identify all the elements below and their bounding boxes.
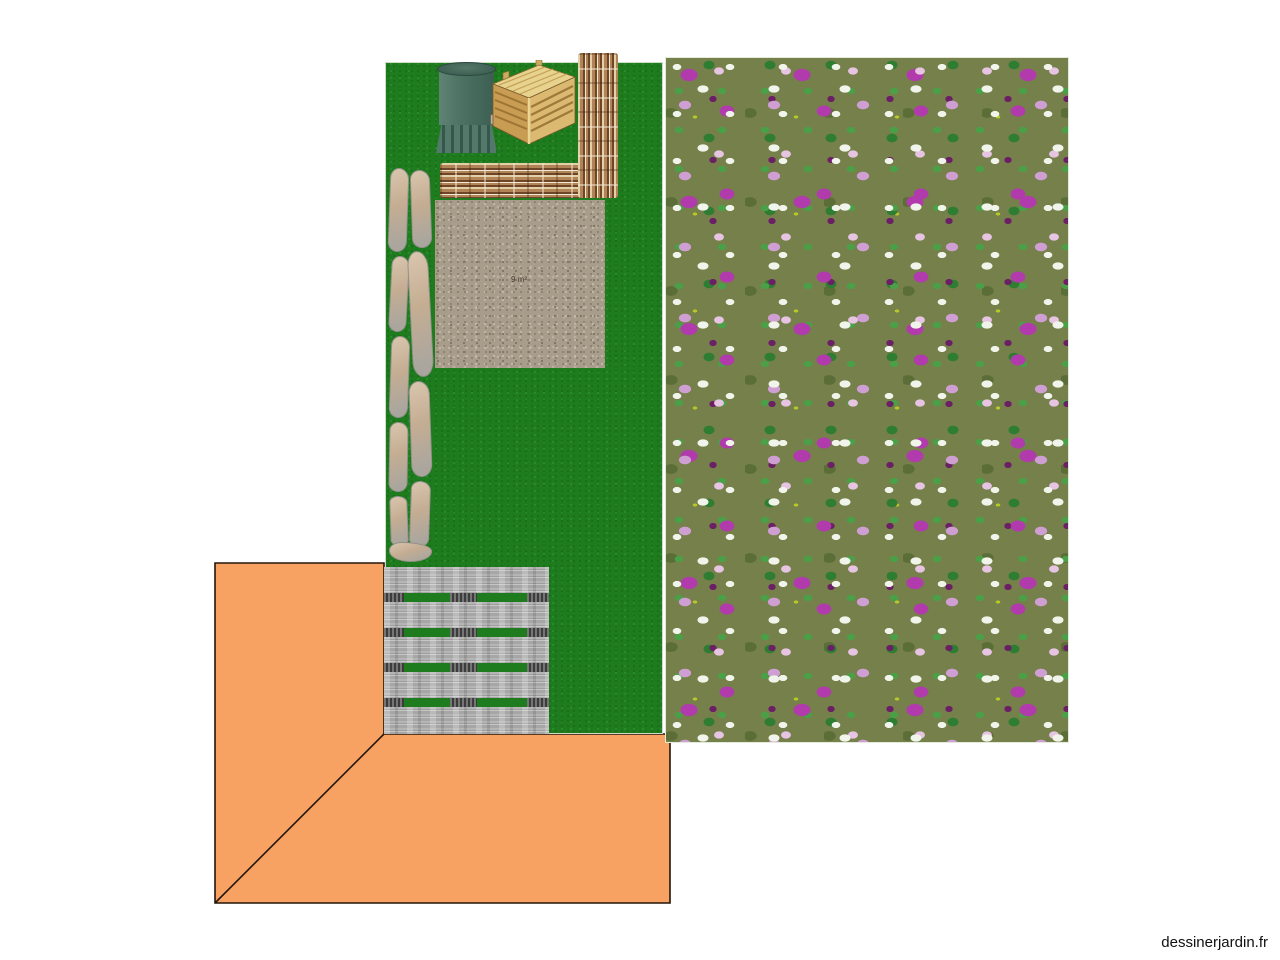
deck-support-hatch bbox=[384, 663, 404, 672]
deck-support-hatch bbox=[384, 628, 404, 637]
stone-slab bbox=[389, 542, 432, 562]
deck-support-hatch bbox=[384, 593, 404, 602]
deck-support-hatch bbox=[527, 628, 549, 637]
water-barrel[interactable] bbox=[436, 62, 497, 153]
deck-support-hatch bbox=[450, 698, 477, 707]
stone-path[interactable] bbox=[384, 165, 436, 565]
deck-plank-gap bbox=[384, 593, 549, 602]
stone-slab bbox=[409, 481, 431, 548]
deck-support-hatch bbox=[450, 663, 477, 672]
flower-bed[interactable] bbox=[665, 57, 1069, 743]
wood-deck[interactable] bbox=[384, 567, 549, 734]
stone-slab bbox=[388, 168, 410, 253]
gravel-area-label: 9 m² bbox=[511, 275, 527, 285]
deck-support-hatch bbox=[384, 698, 404, 707]
deck-support-hatch bbox=[450, 593, 477, 602]
stone-slab bbox=[408, 381, 432, 478]
stone-slab bbox=[389, 336, 411, 419]
deck-plank-gap bbox=[384, 628, 549, 637]
deck-support-hatch bbox=[450, 628, 477, 637]
deck-plank-gap bbox=[384, 663, 549, 672]
wicker-fence-vertical[interactable] bbox=[578, 53, 618, 198]
gravel-area[interactable]: 9 m² bbox=[435, 200, 605, 368]
deck-support-hatch bbox=[527, 698, 549, 707]
stone-slab bbox=[389, 496, 409, 547]
deck-support-hatch bbox=[527, 663, 549, 672]
stone-slab bbox=[388, 422, 408, 492]
barrel-lid bbox=[437, 62, 496, 76]
garden-plan-canvas: 9 m² bbox=[0, 0, 1280, 960]
stone-slab bbox=[407, 251, 435, 378]
compost-bin[interactable] bbox=[490, 60, 578, 146]
deck-support-hatch bbox=[527, 593, 549, 602]
barrel-body bbox=[439, 68, 494, 125]
watermark: dessinerjardin.fr bbox=[1161, 934, 1268, 952]
stone-slab bbox=[410, 170, 433, 249]
deck-plank-gap bbox=[384, 698, 549, 707]
